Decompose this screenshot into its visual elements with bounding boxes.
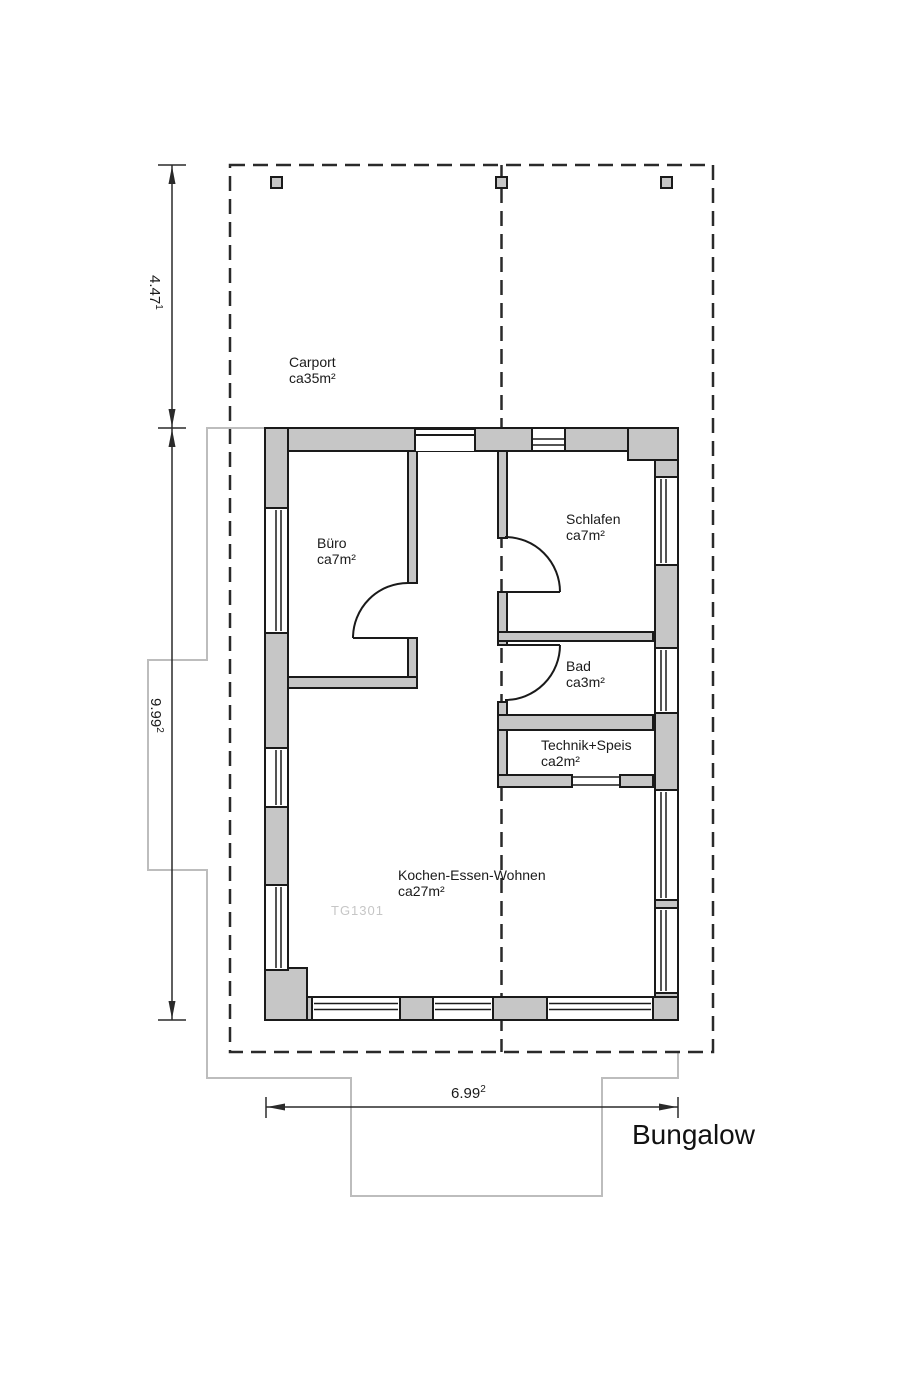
floor-plan-linework [0, 0, 900, 1392]
window-wohnen-bottom-2 [433, 997, 493, 1020]
dimension-carport-depth: 4.471 [146, 275, 163, 310]
dimension-house-width: 6.992 [451, 1085, 486, 1102]
carport-boundary [230, 165, 713, 1052]
room-label-carport: Carport ca35m² [289, 354, 336, 386]
wall-buero-bottom [288, 677, 417, 688]
wall-technik-bottom-right [620, 775, 653, 787]
wall-bad-bottom [498, 715, 653, 730]
room-label-bad: Bad ca3m² [566, 658, 605, 690]
doors [353, 537, 560, 700]
room-area: ca3m² [566, 674, 605, 690]
door-buero [353, 583, 408, 638]
entry-door-opening [415, 428, 475, 451]
wall-technik-bottom-left [498, 775, 572, 787]
room-area: ca35m² [289, 370, 336, 386]
floor-plan: Carport ca35m² Büro ca7m² Schlafen ca7m²… [0, 0, 900, 1392]
room-area: ca7m² [566, 527, 620, 543]
door-schlafen [505, 537, 560, 592]
wall-spine-upper [498, 451, 507, 538]
room-area: ca2m² [541, 753, 632, 769]
wall-corner-top-right [628, 428, 678, 460]
watermark-text: TG1301 [331, 903, 384, 918]
room-name: Carport [289, 354, 336, 370]
wall-buero-right-lower [408, 638, 417, 677]
window-wohnen-bottom-1 [312, 997, 400, 1020]
room-area: ca27m² [398, 883, 546, 899]
room-name: Bad [566, 658, 605, 674]
room-label-technik: Technik+Speis ca2m² [541, 737, 632, 769]
room-label-wohnen: Kochen-Essen-Wohnen ca27m² [398, 867, 546, 899]
room-name: Technik+Speis [541, 737, 632, 753]
windows-bottom [312, 997, 653, 1020]
plan-title: Bungalow [632, 1119, 755, 1151]
wall-buero-right-upper [408, 451, 417, 583]
carport-post-middle [496, 177, 507, 188]
carport-post-right [661, 177, 672, 188]
carport-posts [271, 177, 672, 188]
wall-corner-bottom-left [265, 968, 307, 1020]
wall-schlafen-bottom [498, 632, 653, 641]
room-label-schlafen: Schlafen ca7m² [566, 511, 620, 543]
dimension-house-depth: 9.992 [147, 698, 164, 733]
carport-post-left [271, 177, 282, 188]
technik-opening [572, 777, 620, 785]
window-wohnen-bottom-3 [547, 997, 653, 1020]
door-bad [505, 645, 560, 700]
roof-outline-dashed [230, 165, 713, 1052]
room-name: Schlafen [566, 511, 620, 527]
room-area: ca7m² [317, 551, 356, 567]
room-label-buero: Büro ca7m² [317, 535, 356, 567]
room-name: Büro [317, 535, 356, 551]
room-name: Kochen-Essen-Wohnen [398, 867, 546, 883]
